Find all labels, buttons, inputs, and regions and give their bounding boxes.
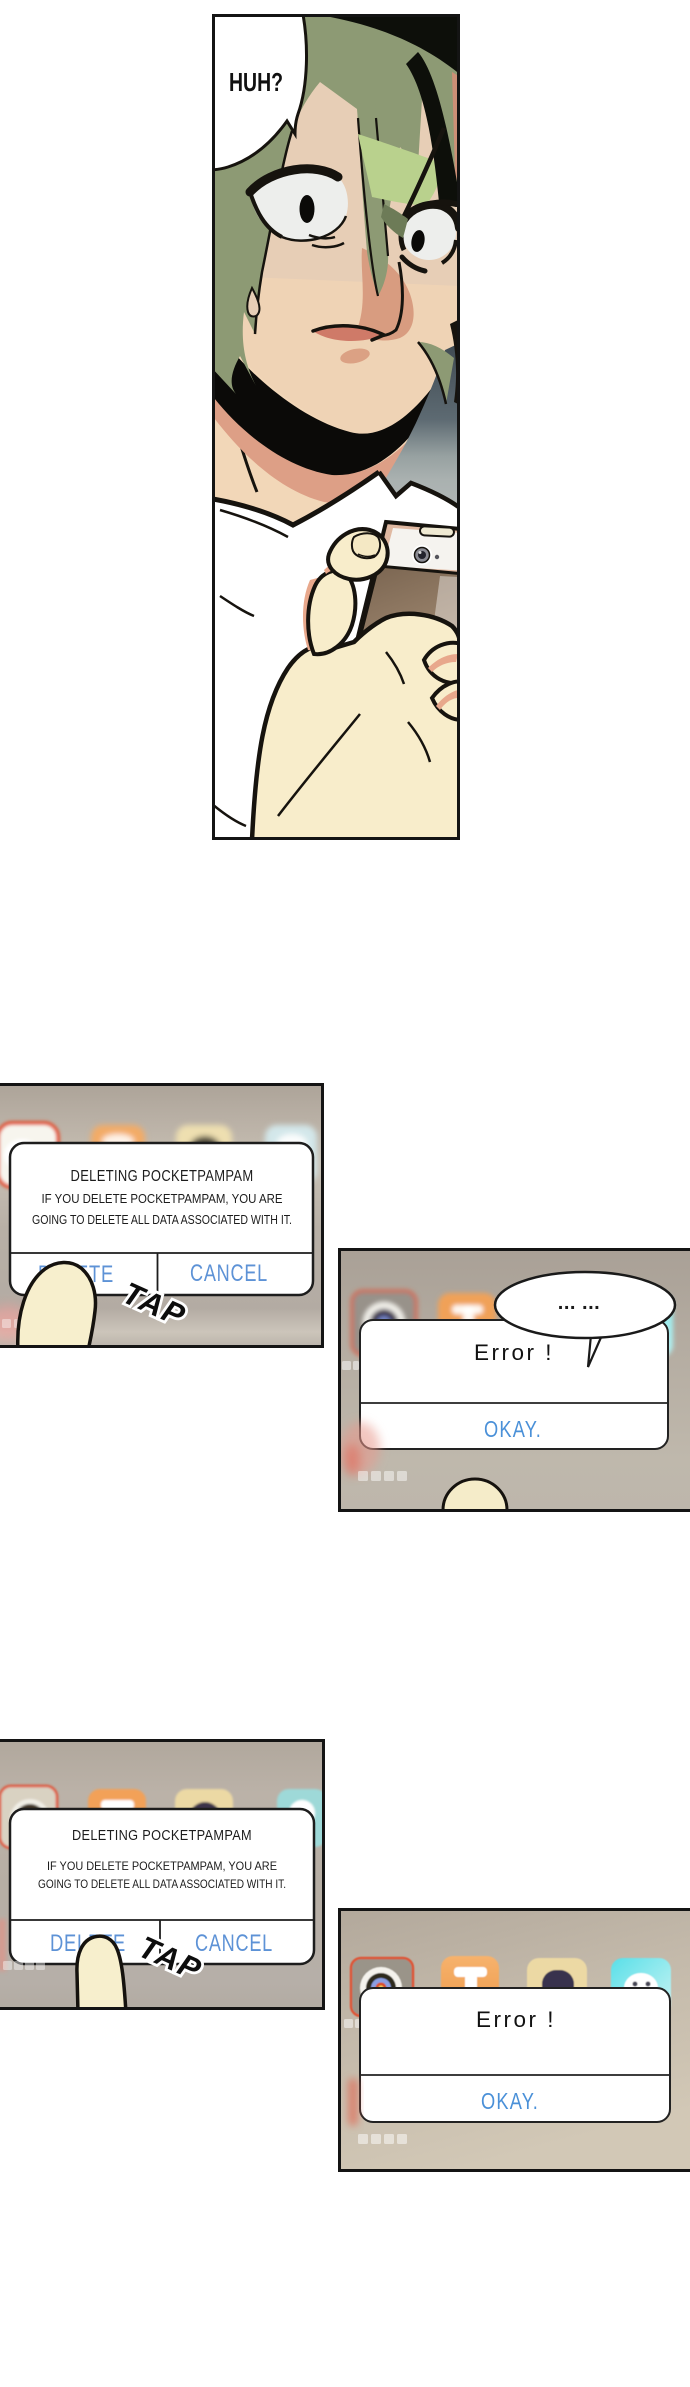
- svg-text:CANCEL: CANCEL: [195, 1930, 273, 1957]
- svg-text:IF YOU DELETE POCKETPAMPAM, YO: IF YOU DELETE POCKETPAMPAM, YOU ARE: [47, 1859, 277, 1873]
- svg-text:GOING TO DELETE ALL DATA ASSOC: GOING TO DELETE ALL DATA ASSOCIATED WITH…: [38, 1877, 286, 1891]
- svg-text:DELETING POCKETPAMPAM: DELETING POCKETPAMPAM: [71, 1168, 254, 1185]
- svg-text:OKAY.: OKAY.: [481, 2088, 539, 2114]
- svg-text:Error !: Error !: [476, 2007, 556, 2032]
- svg-text:IF YOU DELETE POCKETPAMPAM, YO: IF YOU DELETE POCKETPAMPAM, YOU ARE: [42, 1192, 283, 1206]
- svg-text:... ...: ... ...: [558, 1292, 600, 1314]
- svg-text:Error !: Error !: [474, 1340, 554, 1365]
- svg-text:GOING TO DELETE ALL DATA ASSOC: GOING TO DELETE ALL DATA ASSOCIATED WITH…: [32, 1213, 292, 1227]
- svg-text:OKAY.: OKAY.: [484, 1416, 542, 1442]
- svg-text:CANCEL: CANCEL: [190, 1260, 268, 1287]
- svg-text:DELETING POCKETPAMPAM: DELETING POCKETPAMPAM: [72, 1827, 252, 1844]
- svg-text:HUH?: HUH?: [229, 67, 283, 97]
